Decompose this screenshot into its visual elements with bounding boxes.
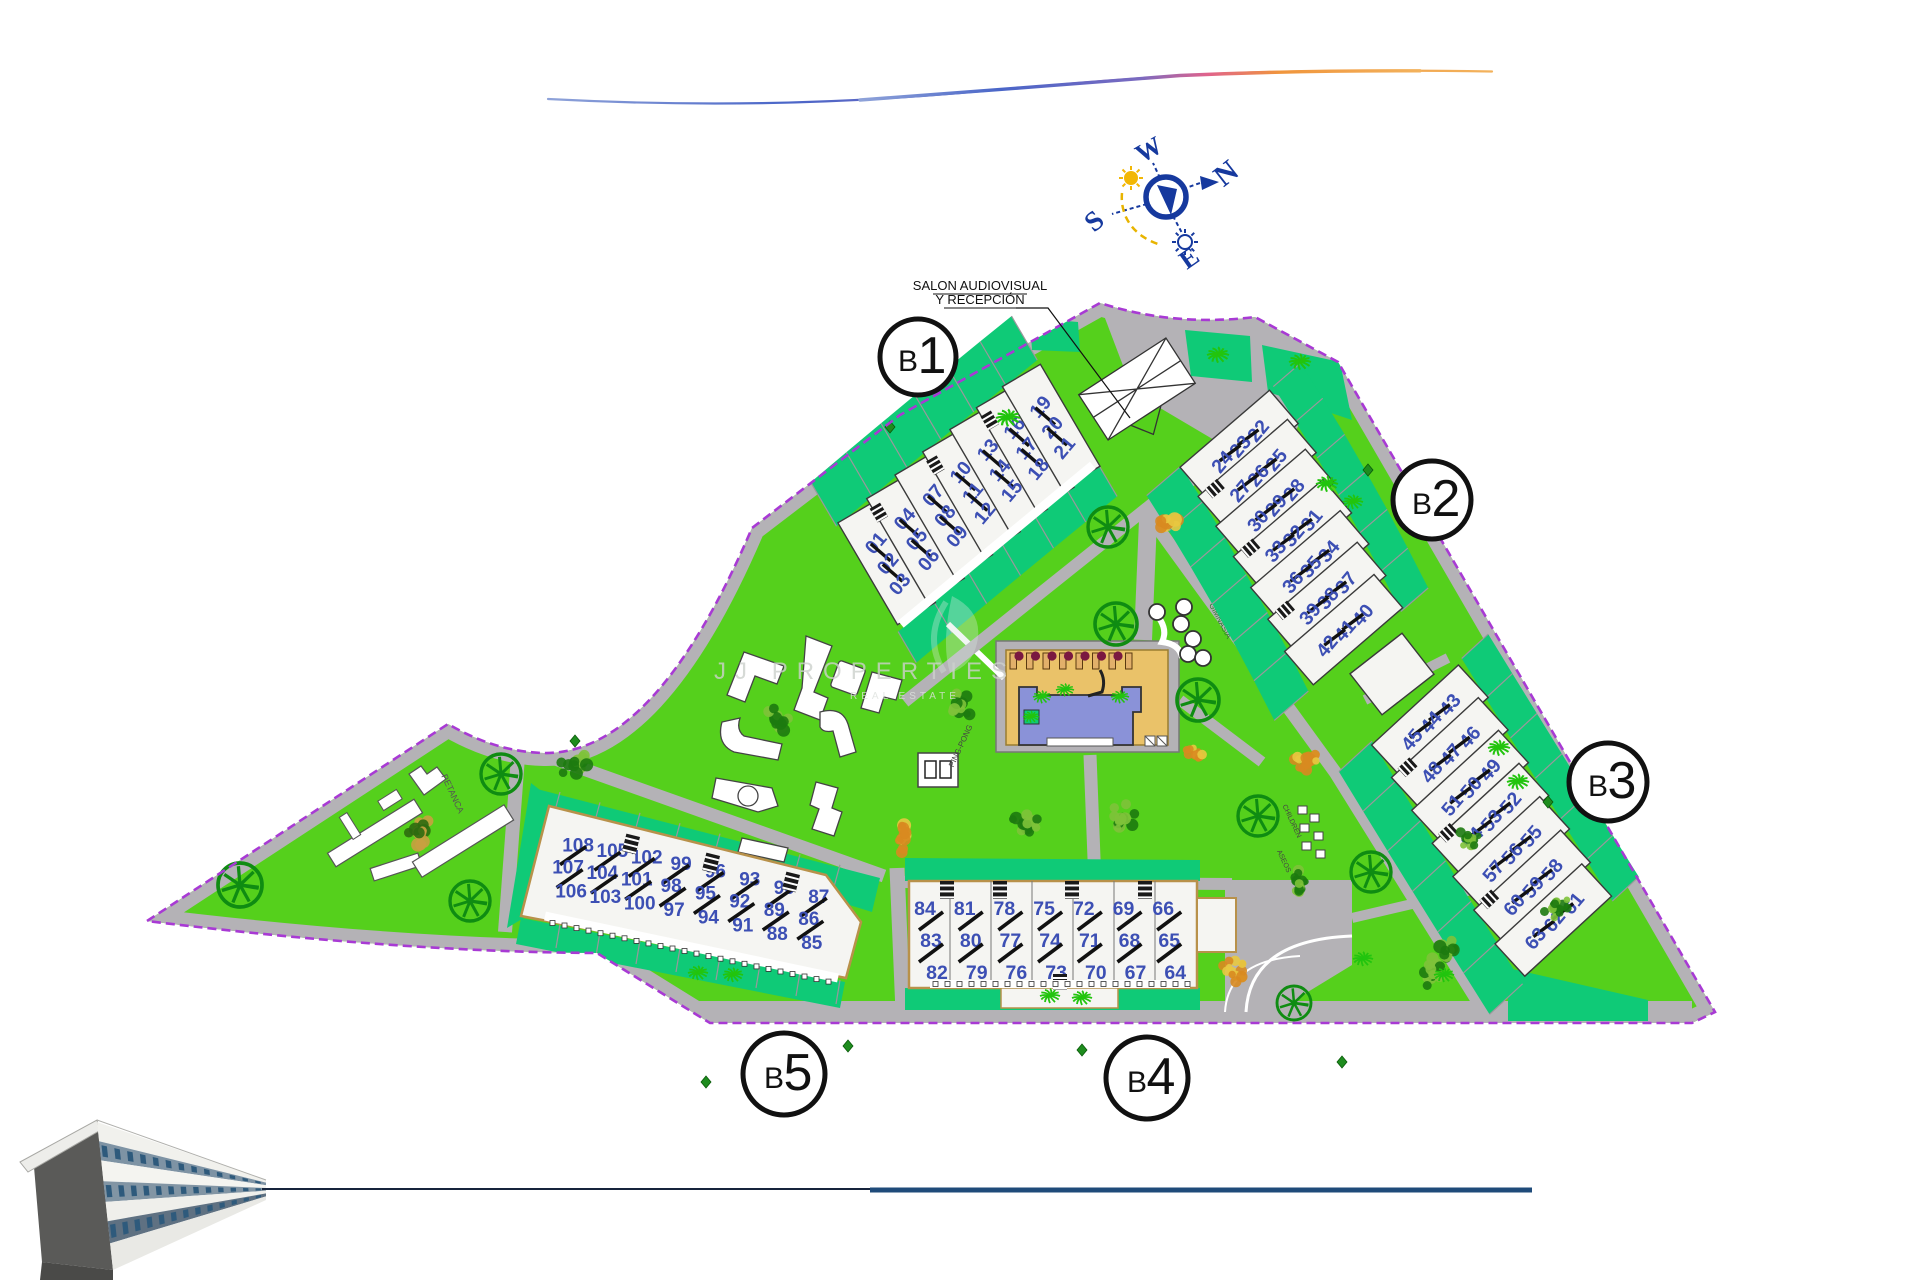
svg-text:104: 104 — [587, 863, 619, 884]
svg-text:91: 91 — [732, 916, 754, 937]
svg-text:103: 103 — [590, 887, 622, 908]
svg-text:100: 100 — [624, 893, 656, 914]
svg-text:78: 78 — [994, 898, 1016, 920]
svg-text:4: 4 — [1147, 1048, 1176, 1106]
svg-text:107: 107 — [552, 858, 584, 879]
svg-text:SALON AUDIOVISUAL: SALON AUDIOVISUAL — [913, 278, 1047, 293]
svg-text:B: B — [1412, 488, 1432, 521]
svg-text:W: W — [1130, 131, 1167, 169]
svg-text:101: 101 — [621, 869, 653, 890]
svg-text:75: 75 — [1033, 898, 1055, 920]
svg-text:97: 97 — [664, 900, 685, 921]
svg-text:JJ PROPERTIES: JJ PROPERTIES — [714, 658, 1016, 685]
svg-text:69: 69 — [1113, 898, 1135, 920]
svg-text:B: B — [1127, 1066, 1147, 1099]
svg-text:2: 2 — [1432, 470, 1461, 528]
svg-text:72: 72 — [1073, 898, 1095, 920]
svg-text:N: N — [1207, 154, 1245, 194]
svg-text:S: S — [1079, 205, 1111, 239]
svg-text:REAL ESTATE: REAL ESTATE — [850, 691, 960, 702]
svg-text:81: 81 — [954, 898, 976, 920]
svg-text:B: B — [898, 345, 918, 378]
svg-text:5: 5 — [784, 1044, 813, 1102]
svg-text:66: 66 — [1152, 898, 1174, 920]
svg-text:85: 85 — [801, 933, 823, 954]
svg-text:84: 84 — [914, 898, 936, 920]
svg-text:B: B — [1588, 770, 1608, 803]
svg-text:94: 94 — [698, 908, 720, 929]
svg-text:106: 106 — [555, 882, 587, 903]
svg-text:B: B — [764, 1062, 784, 1095]
svg-text:88: 88 — [767, 924, 788, 945]
svg-text:1: 1 — [918, 327, 947, 385]
svg-text:3: 3 — [1608, 752, 1637, 810]
